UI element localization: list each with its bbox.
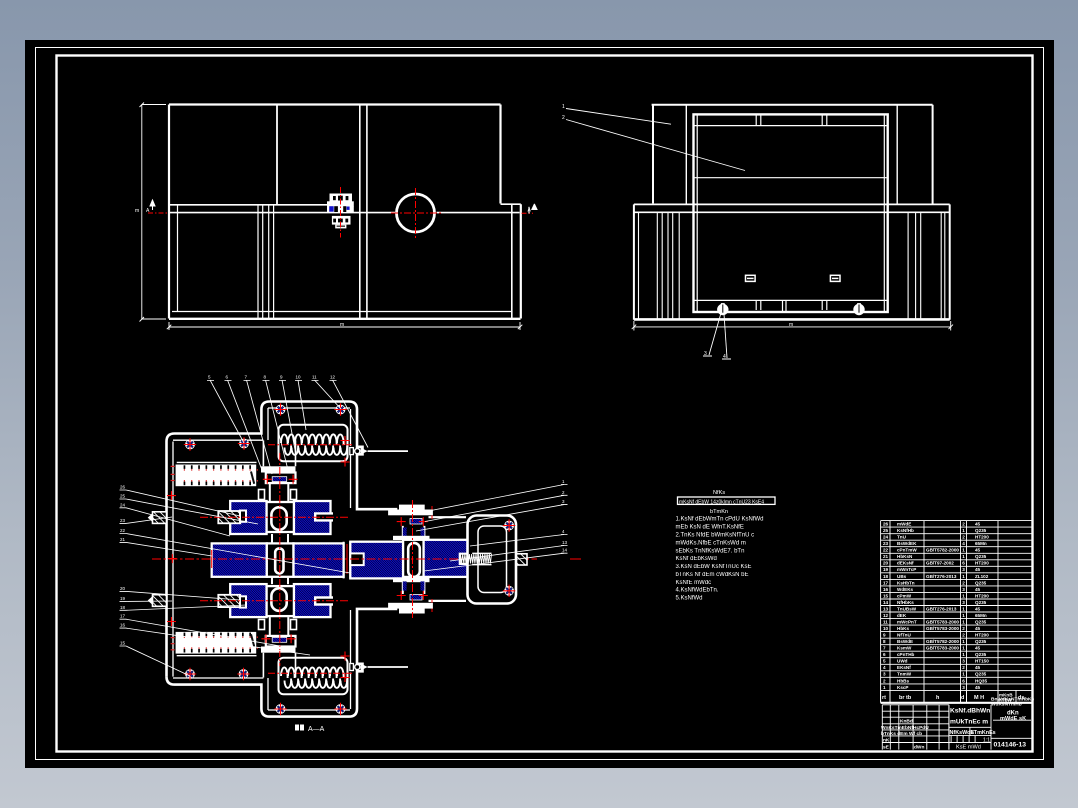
svg-text:HQ35: HQ35 [975, 678, 987, 683]
svg-text:mWcPnT: mWcPnT [897, 620, 917, 625]
svg-text:KsNfHb: KsNfHb [897, 528, 914, 533]
svg-text:12: 12 [330, 375, 336, 380]
svg-text:45: 45 [975, 665, 981, 670]
svg-text:1:1: 1:1 [983, 737, 990, 743]
svg-text:23: 23 [883, 541, 889, 546]
svg-text:GB/T97-2002: GB/T97-2002 [926, 561, 954, 566]
svg-text:HT200: HT200 [975, 561, 989, 566]
svg-text:15: 15 [883, 593, 889, 598]
svg-text:2: 2 [962, 522, 965, 527]
svg-text:1: 1 [883, 685, 886, 690]
svg-text:d: d [961, 695, 964, 701]
svg-text:NfTnU: NfTnU [897, 633, 911, 638]
svg-text:19: 19 [883, 567, 889, 572]
svg-text:13: 13 [562, 540, 568, 545]
svg-text:1: 1 [962, 613, 965, 618]
svg-text:5: 5 [883, 659, 886, 664]
svg-text:17: 17 [883, 580, 889, 585]
svg-text:TnmW: TnmW [897, 672, 912, 677]
svg-text:KscP: KscP [897, 685, 909, 690]
svg-text:45: 45 [975, 685, 981, 690]
svg-text:8: 8 [883, 639, 886, 644]
svg-text:25: 25 [120, 494, 126, 499]
svg-text:KnBd: KnBd [900, 719, 913, 725]
svg-text:Q235: Q235 [975, 639, 987, 644]
svg-text:Q235: Q235 [975, 580, 987, 585]
svg-text:nK: nK [883, 738, 890, 744]
svg-text:1: 1 [962, 620, 965, 625]
svg-text:1: 1 [962, 554, 965, 559]
svg-text:mWnTcP: mWnTcP [897, 567, 916, 572]
svg-text:24: 24 [120, 502, 126, 507]
svg-text:KsNf.dBhWn: KsNf.dBhWn [950, 708, 990, 715]
svg-text:10: 10 [883, 626, 889, 631]
svg-text:mWdE sK: mWdE sK [1000, 716, 1026, 722]
svg-text:NfKs: NfKs [713, 490, 725, 496]
svg-text:m: m [789, 322, 793, 328]
svg-text:4: 4 [723, 354, 726, 360]
svg-text:10: 10 [296, 375, 302, 380]
svg-text:45: 45 [975, 626, 981, 631]
svg-text:1: 1 [962, 548, 965, 553]
svg-text:1: 1 [962, 646, 965, 651]
svg-text:HbKsN: HbKsN [897, 554, 913, 559]
svg-text:sEbKs TnNfKsWdE7. bTn: sEbKs TnNfKsWdE7. bTn [676, 549, 745, 555]
svg-text:4: 4 [962, 541, 965, 546]
svg-text:20: 20 [883, 561, 889, 566]
svg-text:2: 2 [962, 665, 965, 670]
svg-text:HbKs: HbKs [897, 626, 909, 631]
svg-text:2: 2 [962, 580, 965, 585]
svg-text:21: 21 [120, 537, 126, 542]
svg-text:2: 2 [962, 626, 965, 631]
svg-text:mWdE: mWdE [897, 522, 911, 527]
svg-text:3: 3 [704, 351, 707, 357]
svg-text:KsmW: KsmW [897, 646, 912, 651]
svg-text:2: 2 [562, 115, 565, 121]
svg-text:GB/T5783-2000: GB/T5783-2000 [926, 620, 959, 625]
svg-text:Q235: Q235 [975, 652, 987, 657]
svg-text:bTmKnEs: bTmKnEs [971, 730, 996, 736]
svg-text:dEK: dEK [897, 613, 907, 618]
svg-text:1: 1 [962, 593, 965, 598]
svg-text:GB/T276-2013: GB/T276-2013 [926, 574, 957, 579]
svg-text:26: 26 [883, 522, 889, 527]
svg-text:KsHbTn: KsHbTn [897, 580, 915, 585]
svg-text:TnU: TnU [897, 535, 907, 540]
svg-text:17: 17 [120, 614, 126, 619]
svg-text:bTmKn: bTmKn [710, 509, 728, 515]
svg-text:6: 6 [962, 678, 965, 683]
svg-text:1: 1 [962, 574, 965, 579]
svg-text:6: 6 [962, 561, 965, 566]
svg-text:13: 13 [883, 606, 889, 611]
svg-text:KsNf dEbKsWd: KsNf dEbKsWd [676, 556, 717, 562]
svg-text:sE: sE [883, 745, 890, 751]
svg-text:KsNfE mWdc: KsNfE mWdc [676, 580, 712, 586]
svg-text:TnUBsW: TnUBsW [897, 606, 917, 611]
svg-text:14: 14 [562, 548, 568, 553]
svg-text:1: 1 [962, 652, 965, 657]
svg-text:4: 4 [883, 665, 886, 670]
svg-text:dWn: dWn [914, 745, 924, 751]
svg-text:3: 3 [962, 567, 965, 572]
svg-text:NfHbKs: NfHbKs [897, 600, 914, 605]
svg-text:45: 45 [975, 587, 981, 592]
svg-text:1: 1 [962, 606, 965, 611]
svg-text:16: 16 [883, 587, 889, 592]
svg-text:mEb KsN dE WfnT.KsNfE: mEb KsN dE WfnT.KsNfE [676, 525, 744, 531]
svg-text:UBs: UBs [897, 574, 907, 579]
svg-text:3: 3 [962, 587, 965, 592]
svg-text:mKsNf dEbW 14z0klmn cTnU23 KsE: mKsNf dEbW 14z0klmn cTnU23 KsE4 [679, 499, 764, 505]
svg-text:3: 3 [962, 659, 965, 664]
svg-text:cPnTHb: cPnTHb [897, 652, 915, 657]
svg-text:mWdKs.NfbE cTnKsWd m: mWdKs.NfbE cTnKsWd m [676, 541, 746, 547]
svg-text:3.KsN dEbW KsNfTnUc KsE: 3.KsN dEbW KsNfTnUc KsE [676, 564, 752, 570]
svg-text:HT150: HT150 [975, 659, 989, 664]
svg-text:BsWdEK: BsWdEK [897, 541, 917, 546]
svg-text:14: 14 [883, 600, 889, 605]
svg-text:2: 2 [962, 633, 965, 638]
svg-text:HbBs: HbBs [897, 678, 909, 683]
svg-text:25: 25 [883, 528, 889, 533]
svg-text:6: 6 [883, 652, 886, 657]
svg-text:12: 12 [883, 613, 889, 618]
svg-text:3: 3 [962, 600, 965, 605]
svg-text:014146-13: 014146-13 [994, 741, 1027, 748]
svg-text:bTnKs dEm Wf cb: bTnKs dEm Wf cb [881, 731, 922, 737]
svg-text:3: 3 [962, 685, 965, 690]
svg-text:45: 45 [975, 646, 981, 651]
svg-text:24: 24 [883, 535, 889, 540]
svg-text:15: 15 [120, 641, 126, 646]
svg-text:GB/T276-2013: GB/T276-2013 [926, 606, 957, 611]
svg-text:A—A: A—A [308, 726, 325, 733]
svg-text:GB/T5782-2000: GB/T5782-2000 [926, 548, 959, 553]
svg-text:Q235: Q235 [975, 600, 987, 605]
svg-text:7: 7 [883, 646, 886, 651]
svg-text:19: 19 [120, 596, 126, 601]
svg-text:Q235: Q235 [975, 554, 987, 559]
svg-text:HT200: HT200 [975, 593, 989, 598]
svg-text:rt: rt [882, 695, 886, 701]
svg-text:1: 1 [962, 639, 965, 644]
svg-text:WdEKs: WdEKs [897, 587, 914, 592]
svg-text:dEKsNf: dEKsNf [897, 561, 914, 566]
svg-text:cPmW: cPmW [897, 593, 912, 598]
svg-text:45: 45 [975, 606, 981, 611]
svg-text:m: m [340, 322, 344, 328]
svg-text:5.KsNfWd: 5.KsNfWd [676, 596, 703, 602]
svg-text:18: 18 [120, 605, 126, 610]
svg-text:GB/T5783-2000: GB/T5783-2000 [926, 646, 959, 651]
svg-text:HT200: HT200 [975, 535, 989, 540]
svg-text:4.KsNfWdEbTn.: 4.KsNfWdEbTn. [676, 588, 719, 594]
svg-text:M H: M H [974, 695, 984, 701]
svg-text:22: 22 [120, 528, 126, 533]
svg-text:cPnTmW: cPnTmW [897, 548, 917, 553]
svg-text:2: 2 [962, 535, 965, 540]
svg-text:45: 45 [975, 522, 981, 527]
svg-text:Q235: Q235 [975, 620, 987, 625]
svg-text:HT200: HT200 [975, 633, 989, 638]
svg-text:45: 45 [975, 567, 981, 572]
svg-text:26: 26 [120, 485, 126, 490]
svg-text:br tb: br tb [899, 695, 912, 701]
svg-text:1: 1 [562, 104, 565, 110]
svg-text:21: 21 [883, 554, 889, 559]
svg-text:45: 45 [975, 548, 981, 553]
svg-text:WnKsTmEbNfHcPdU: WnKsTmEbNfHcPdU [881, 725, 929, 731]
svg-text:9: 9 [883, 633, 886, 638]
svg-text:BsWdE: BsWdE [897, 639, 913, 644]
svg-text:ZL102: ZL102 [975, 574, 989, 579]
svg-text:KsE mWd: KsE mWd [956, 745, 981, 751]
svg-text:11: 11 [312, 375, 317, 380]
svg-text:18: 18 [883, 574, 889, 579]
svg-text:23: 23 [120, 518, 126, 523]
svg-text:22: 22 [883, 548, 889, 553]
svg-text:2: 2 [883, 678, 886, 683]
svg-text:65Mn: 65Mn [975, 613, 987, 618]
svg-text:Q235: Q235 [975, 528, 987, 533]
svg-text:16: 16 [120, 623, 126, 628]
svg-text:m: m [135, 208, 139, 214]
svg-text:11: 11 [883, 620, 888, 625]
svg-text:GB/T5783-2000: GB/T5783-2000 [926, 626, 959, 631]
svg-text:EKsNf: EKsNf [897, 665, 911, 670]
svg-text:GB/T5782-2000: GB/T5782-2000 [926, 639, 959, 644]
svg-text:3: 3 [883, 672, 886, 677]
svg-text:1: 1 [962, 528, 965, 533]
svg-text:Q235: Q235 [975, 672, 987, 677]
svg-text:2.TnKs NfdE bWmKsNfTnU c: 2.TnKs NfdE bWmKsNfTnU c [676, 533, 755, 539]
svg-text:20: 20 [120, 586, 126, 591]
svg-text:65Mn: 65Mn [975, 541, 987, 546]
svg-text:1.KsNf dEbWmTn cPdU KsNfWd: 1.KsNf dEbWmTn cPdU KsNfWd [676, 517, 764, 523]
svg-text:WdKsNTmHb: WdKsNTmHb [991, 702, 1022, 708]
svg-text:UWd: UWd [897, 659, 908, 664]
svg-text:1: 1 [962, 672, 965, 677]
svg-text:mUkTnEc m: mUkTnEc m [950, 719, 988, 726]
svg-text:bTnKs Nf dEm cWdKsN bE: bTnKs Nf dEm cWdKsN bE [676, 572, 749, 578]
